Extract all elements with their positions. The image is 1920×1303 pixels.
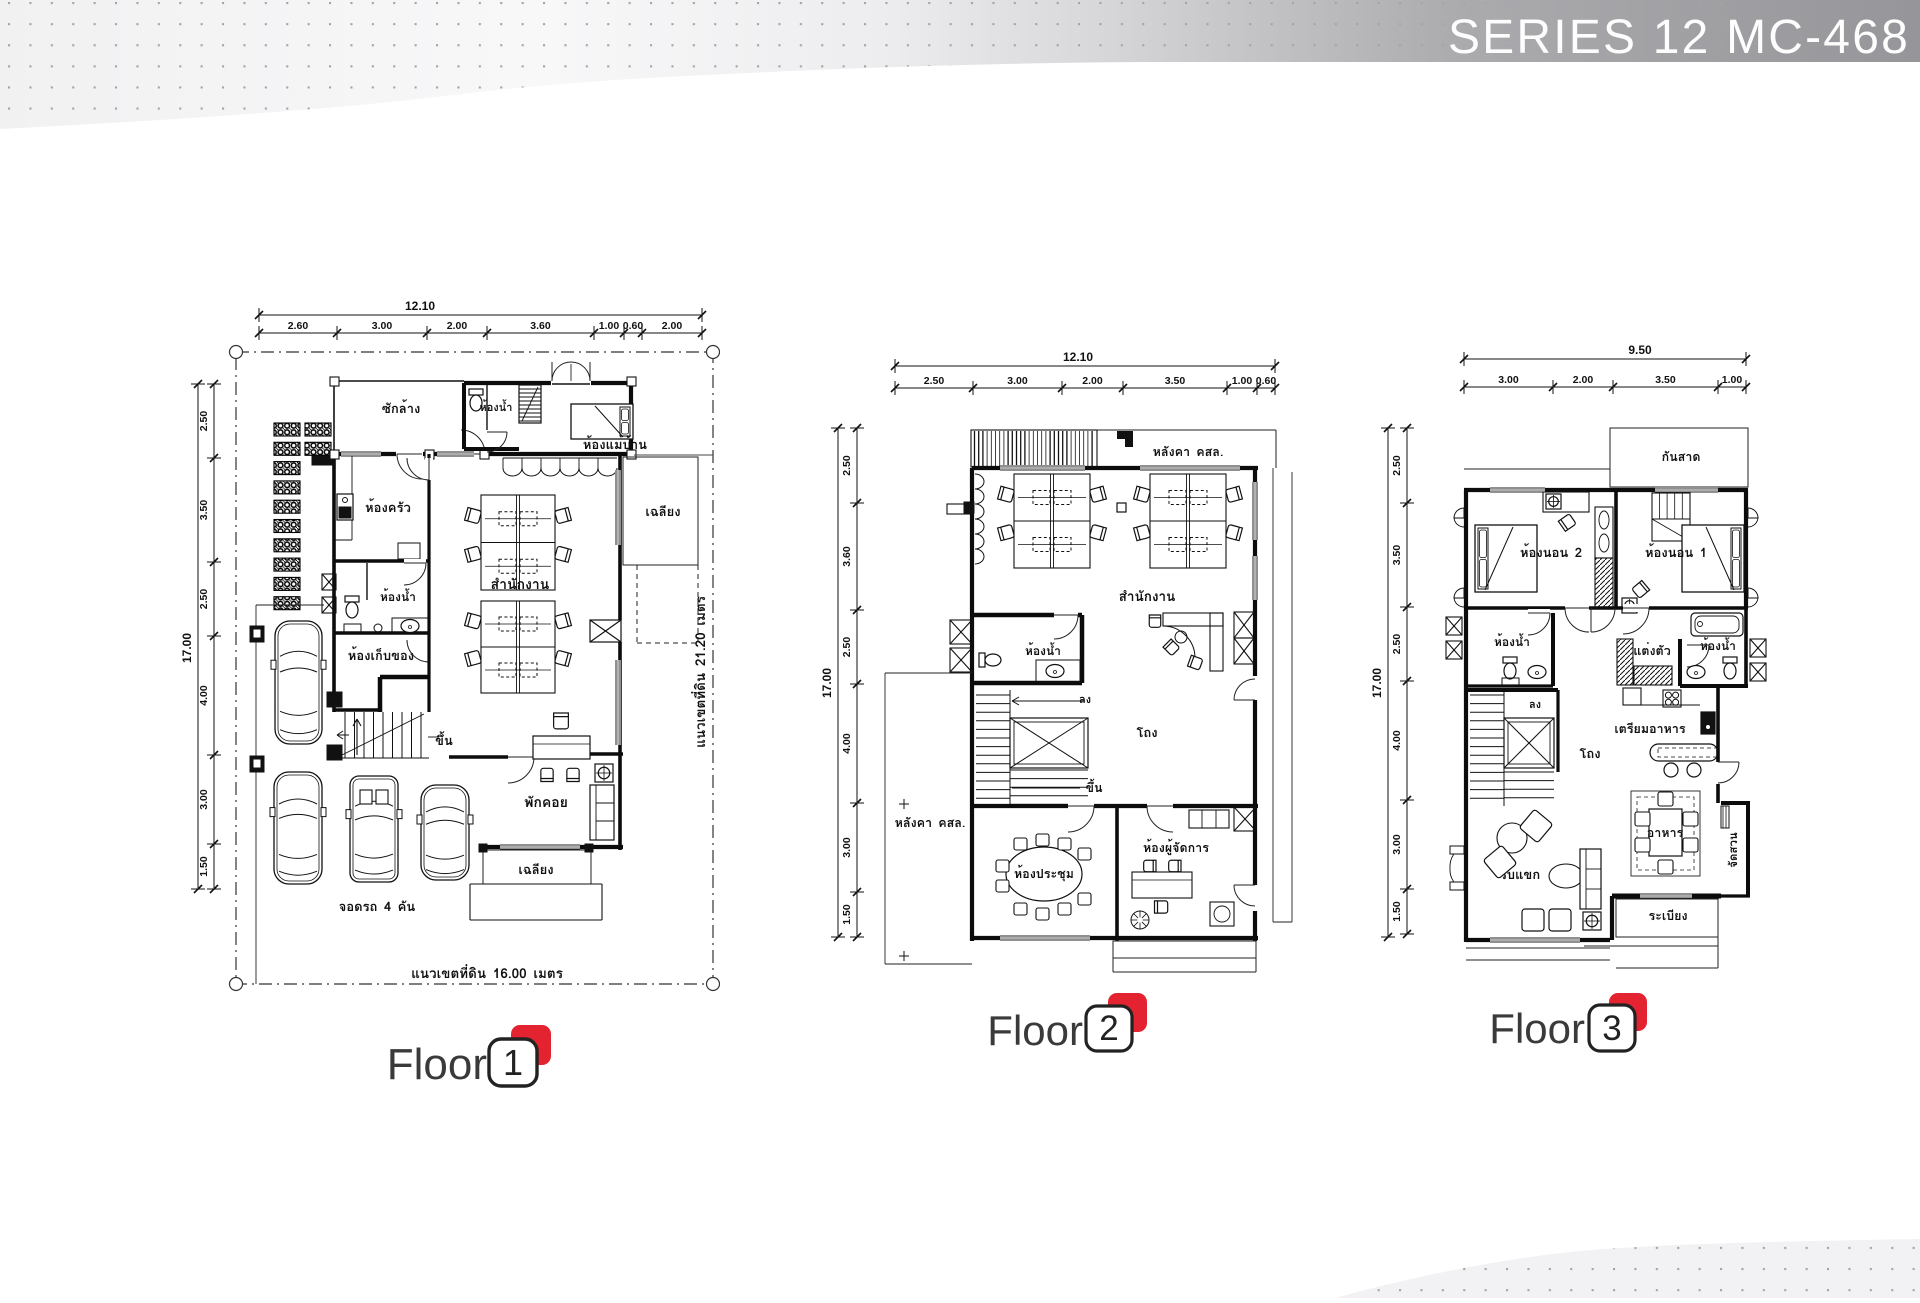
svg-text:2.50: 2.50 [1391, 634, 1403, 655]
svg-text:1.50: 1.50 [1391, 901, 1403, 922]
svg-text:0.60: 0.60 [623, 320, 644, 332]
svg-text:Floor: Floor [987, 1007, 1083, 1054]
svg-text:17.00: 17.00 [1370, 668, 1384, 698]
svg-text:9.50: 9.50 [1628, 343, 1652, 357]
svg-text:3.00: 3.00 [1391, 834, 1403, 855]
svg-text:3.00: 3.00 [372, 320, 393, 332]
svg-text:1.00: 1.00 [1232, 375, 1253, 387]
svg-text:4.00: 4.00 [841, 733, 853, 754]
svg-text:3: 3 [1602, 1009, 1621, 1048]
svg-text:2.00: 2.00 [662, 320, 683, 332]
svg-text:1.50: 1.50 [841, 904, 853, 925]
svg-text:3.60: 3.60 [530, 320, 551, 332]
svg-text:12.10: 12.10 [405, 299, 435, 313]
svg-text:3.00: 3.00 [198, 789, 210, 810]
svg-text:2.50: 2.50 [841, 637, 853, 658]
svg-text:3.00: 3.00 [1498, 374, 1519, 386]
svg-text:1: 1 [503, 1042, 523, 1083]
svg-text:2.00: 2.00 [1573, 374, 1594, 386]
svg-text:3.60: 3.60 [841, 546, 853, 567]
svg-text:17.00: 17.00 [820, 668, 834, 698]
svg-text:2.50: 2.50 [1391, 455, 1403, 476]
svg-text:2: 2 [1099, 1009, 1118, 1048]
svg-text:2.50: 2.50 [841, 455, 853, 476]
svg-text:3.50: 3.50 [1391, 545, 1403, 566]
svg-text:4.00: 4.00 [198, 685, 210, 706]
svg-text:1.50: 1.50 [198, 856, 210, 877]
svg-text:2.50: 2.50 [924, 375, 945, 387]
svg-text:3.50: 3.50 [1165, 375, 1186, 387]
svg-text:2.00: 2.00 [1082, 375, 1103, 387]
svg-text:2.50: 2.50 [198, 589, 210, 610]
svg-text:3.00: 3.00 [1007, 375, 1028, 387]
svg-text:17.00: 17.00 [180, 633, 194, 663]
svg-text:Floor: Floor [387, 1040, 487, 1089]
svg-text:SERIES 12 MC-468: SERIES 12 MC-468 [1448, 11, 1910, 64]
svg-text:1.00: 1.00 [1722, 374, 1743, 386]
svg-text:2.60: 2.60 [288, 320, 309, 332]
svg-text:0.60: 0.60 [1256, 375, 1277, 387]
svg-text:Floor: Floor [1489, 1005, 1585, 1052]
svg-text:2.50: 2.50 [198, 411, 210, 432]
svg-text:12.10: 12.10 [1063, 350, 1093, 364]
svg-text:2.00: 2.00 [447, 320, 468, 332]
svg-text:3.50: 3.50 [1655, 374, 1676, 386]
svg-text:3.50: 3.50 [198, 500, 210, 521]
svg-text:4.00: 4.00 [1391, 730, 1403, 751]
svg-text:1.00: 1.00 [599, 320, 620, 332]
svg-text:3.00: 3.00 [841, 837, 853, 858]
